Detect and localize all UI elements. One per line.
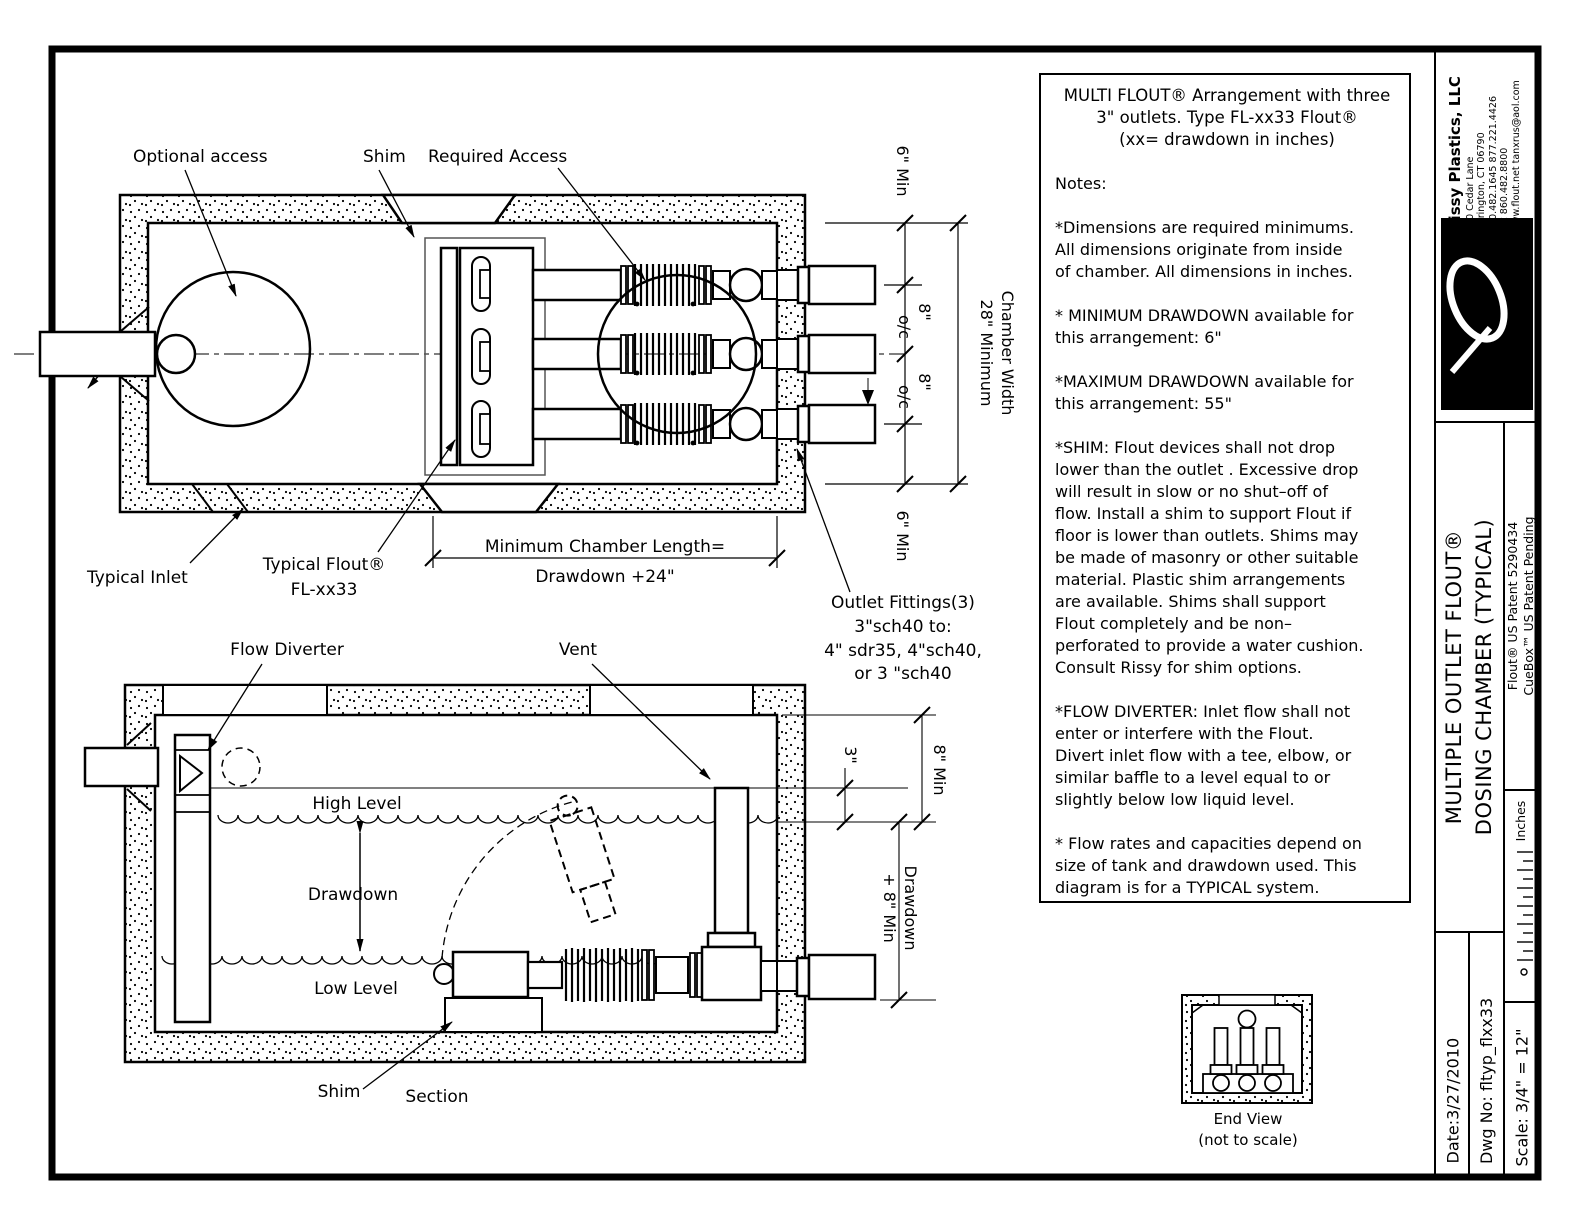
label-low-level: Low Level [314, 979, 398, 999]
dim-3in: 3" [841, 746, 860, 764]
plan-outlet-pipes [533, 264, 875, 445]
plan-flout-device [441, 248, 533, 465]
drawing-sheet: 6" Min 8" o/c 8" o/c 6" Min 28" Minimum … [0, 0, 1584, 1224]
company-phone: 860.482.1645 877.221.4426 [1488, 96, 1500, 232]
scale-field: Scale: 3/4" = 12" [1507, 1008, 1537, 1177]
end-view: End View (not to scale) [1182, 995, 1312, 1149]
note-max-drawdown: *MAXIMUM DRAWDOWN available for this arr… [1055, 371, 1399, 415]
label-required-access: Required Access [428, 147, 567, 167]
company-name: Rissy Plastics, LLC [1446, 76, 1465, 232]
label-typical-flout-1: Typical Flout® [262, 555, 386, 575]
dim-6min-top: 6" Min [893, 145, 912, 196]
plan-view: 6" Min 8" o/c 8" o/c 6" Min 28" Minimum … [14, 145, 1017, 684]
ruler-icon [1517, 852, 1533, 975]
leader-typical-inlet [190, 509, 243, 563]
endview-vent-circle [1239, 1011, 1256, 1028]
notes-label: Notes: [1055, 173, 1399, 195]
drawing-title: MULTIPLE OUTLET FLOUT® DOSING CHAMBER (T… [1436, 427, 1502, 927]
label-outlet-4: or 3 "sch40 [854, 664, 951, 684]
dim-8min: 8" Min [930, 744, 949, 795]
dim-width-2: Chamber Width [998, 291, 1017, 416]
company-logo: RISSY PLASTICS [1439, 218, 1533, 410]
notes-header: MULTI FLOUT® Arrangement with three 3" o… [1055, 85, 1399, 151]
dim-length-2: Drawdown +24" [535, 567, 674, 587]
label-section: Section [405, 1087, 468, 1107]
label-drawdown: Drawdown [308, 885, 398, 905]
label-vent: Vent [559, 640, 598, 660]
plan-inlet-pipe [40, 332, 195, 376]
dim-6min-bottom: 6" Min [893, 510, 912, 561]
dim-8-1: 8" [915, 303, 934, 321]
patent-info: Flout® US Patent 5290434 CueBox™ US Pate… [1503, 426, 1539, 786]
note-shim: *SHIM: Flout devices shall not drop lowe… [1055, 437, 1399, 679]
company-address-2: Torrington, CT 06790 [1476, 132, 1488, 232]
dim-drawdown-1: Drawdown [901, 866, 920, 951]
label-flow-diverter: Flow Diverter [230, 640, 344, 660]
label-end-view: End View [1214, 1110, 1283, 1128]
plan-top-access-riser [383, 195, 515, 223]
dim-oc-1: o/c [895, 315, 914, 339]
company-fax: fax 860.482.8800 [1499, 148, 1511, 232]
date-field: Date:3/27/2010 [1438, 937, 1468, 1174]
drawing-title-line2: DOSING CHAMBER (TYPICAL) [1469, 519, 1499, 835]
note-flow-diverter: *FLOW DIVERTER: Inlet flow shall not ent… [1055, 701, 1399, 811]
company-address-1: 350 Cedar Lane [1465, 157, 1477, 232]
note-flow-rates: * Flow rates and capacities depend on si… [1055, 833, 1399, 899]
section-shim-block [445, 998, 542, 1032]
note-dimensions: *Dimensions are required minimums. All d… [1055, 217, 1399, 283]
label-optional-access: Optional access [133, 147, 268, 167]
logo-wordmark: RISSY PLASTICS [1507, 228, 1523, 384]
label-outlet-3: 4" sdr35, 4"sch40, [824, 641, 982, 661]
label-outlet-2: 3"sch40 to: [854, 617, 951, 637]
section-access-opening-right [590, 685, 753, 715]
label-shim-section: Shim [318, 1082, 361, 1102]
plan-length-dimension: Minimum Chamber Length= Drawdown +24" [425, 516, 785, 587]
company-web-email: www.flout.net tanxrus@aol.com [1511, 80, 1523, 232]
dim-oc-2: o/c [895, 385, 914, 409]
note-min-drawdown: * MINIMUM DRAWDOWN available for this ar… [1055, 305, 1399, 349]
patent-cuebox: CueBox™ US Patent Pending [1521, 516, 1537, 695]
dwg-no-field: Dwg No: fltyp_flxx33 [1471, 937, 1502, 1174]
label-shim-plan: Shim [363, 147, 406, 167]
dim-width-1: 28" Minimum [977, 300, 996, 407]
section-view: Drawdown High Level Low Level [85, 640, 949, 1107]
leader-outlet-fittings [797, 449, 850, 592]
notes-panel: MULTI FLOUT® Arrangement with three 3" o… [1039, 73, 1411, 903]
units-label: Inches [1513, 786, 1529, 856]
drawing-title-line1: MULTIPLE OUTLET FLOUT® [1439, 530, 1469, 825]
dim-8-2: 8" [915, 373, 934, 391]
dim-length-1: Minimum Chamber Length= [485, 537, 725, 557]
dim-drawdown-2: + 8" Min [880, 873, 899, 943]
plan-bottom-access-riser [420, 484, 558, 512]
label-outlet-1: Outlet Fittings(3) [831, 593, 975, 613]
label-high-level: High Level [312, 794, 401, 814]
company-info: Rissy Plastics, LLC 350 Cedar Lane Torri… [1436, 52, 1532, 232]
label-typical-inlet: Typical Inlet [86, 568, 188, 588]
label-typical-flout-2: FL-xx33 [291, 580, 358, 600]
patent-flout: Flout® US Patent 5290434 [1505, 522, 1521, 690]
label-not-to-scale: (not to scale) [1198, 1131, 1298, 1149]
section-access-opening-left [163, 685, 327, 715]
